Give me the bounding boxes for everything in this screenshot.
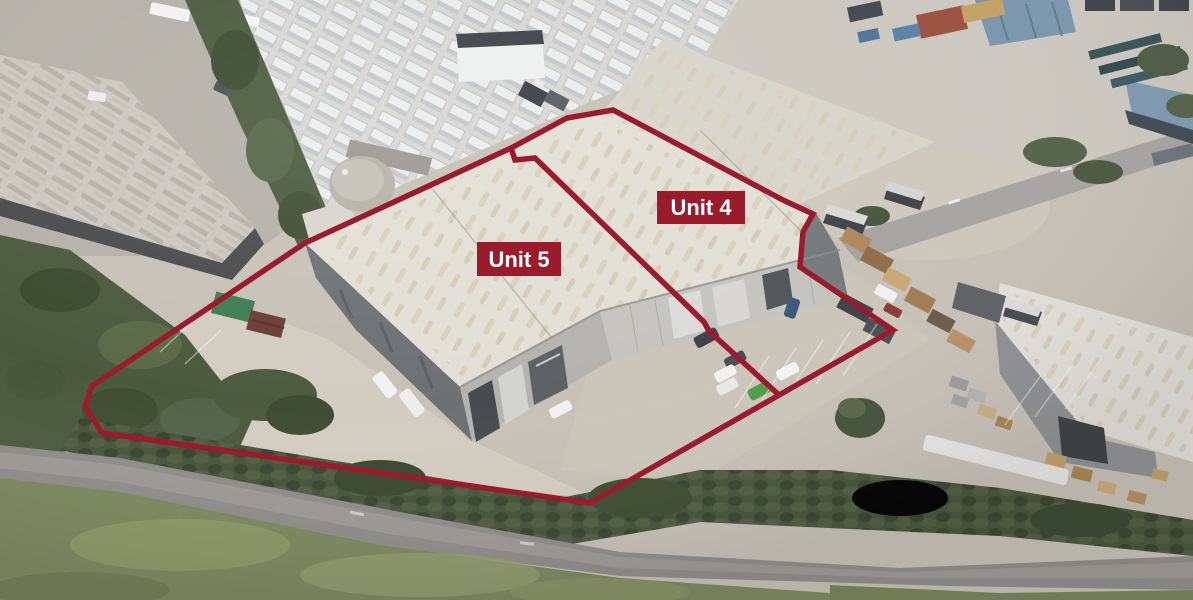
unit4-label: Unit 4: [657, 191, 745, 224]
unit4-label-text: Unit 4: [670, 195, 732, 220]
unit5-label-text: Unit 5: [488, 247, 549, 272]
unit5-label: Unit 5: [477, 242, 561, 276]
aerial-photo: Unit 4 Unit 5: [0, 0, 1193, 600]
aerial-scene: Unit 4 Unit 5: [0, 0, 1193, 600]
photo-sheen: [0, 0, 1193, 600]
